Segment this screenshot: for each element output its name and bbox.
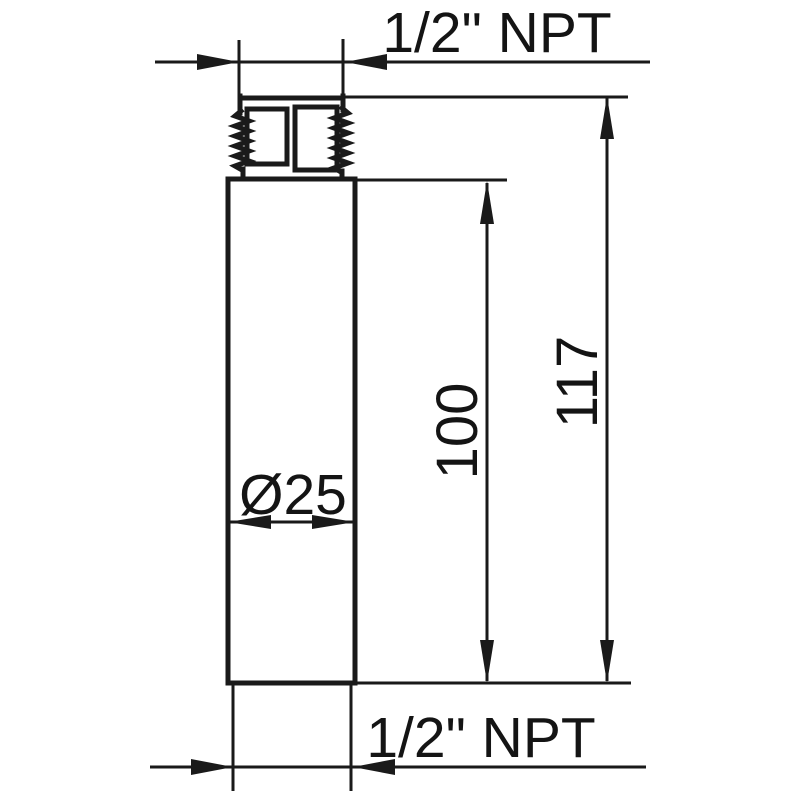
bottom-thread-dimension: 1/2" NPT (150, 685, 646, 791)
drawing-page: 1/2" NPT 100 (0, 0, 800, 800)
arrowhead-right-icon (197, 54, 239, 70)
arrowhead-right-icon (191, 759, 233, 775)
top-thread-label: 1/2" NPT (382, 1, 611, 65)
arrowhead-up-icon (480, 181, 494, 224)
arrowhead-left-icon (345, 54, 387, 70)
diameter-dimension: Ø25 (228, 463, 355, 529)
plug-left-flat (247, 109, 287, 164)
body-length-label: 100 (425, 383, 490, 480)
overall-length-label: 117 (545, 336, 610, 428)
arrowhead-down-icon (600, 640, 614, 683)
threaded-plug (235, 96, 348, 181)
body-diameter-label: Ø25 (239, 463, 347, 527)
technical-drawing: 1/2" NPT 100 (0, 0, 800, 800)
bottom-thread-label: 1/2" NPT (366, 706, 595, 770)
cylindrical-body (228, 179, 355, 683)
arrowhead-down-icon (480, 640, 494, 683)
overall-length-dimension: 117 (545, 96, 614, 683)
body-length-dimension: 100 (425, 181, 494, 683)
arrowhead-up-icon (600, 96, 614, 139)
